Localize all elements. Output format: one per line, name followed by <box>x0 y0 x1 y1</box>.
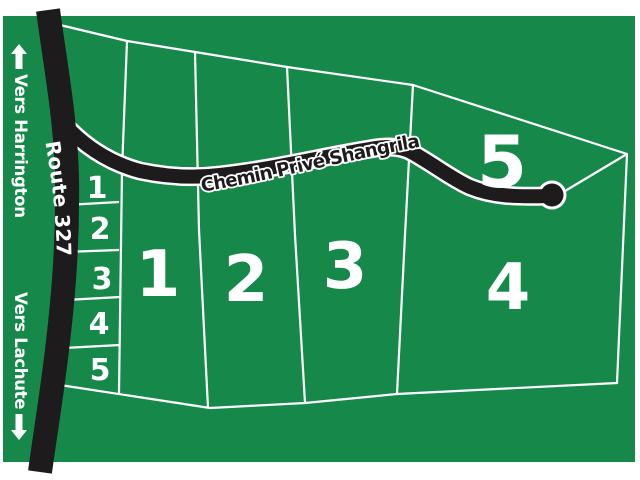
small-lot-2-number: 2 <box>90 212 111 247</box>
cul-de-sac-bulb <box>541 184 564 207</box>
large-lot-3-number: 3 <box>323 230 368 304</box>
large-lot-4-number: 4 <box>486 251 531 325</box>
direction-north-label: Vers Harrington <box>11 74 30 218</box>
large-lot-5-number: 5 <box>477 120 527 204</box>
lot-map-page: 1 2 3 4 5 1 2 3 4 5 Vers Harrington Vers… <box>0 0 640 480</box>
small-lot-3-number: 3 <box>92 262 113 297</box>
large-lot-1-number: 1 <box>136 238 181 312</box>
large-lot-2-number: 2 <box>224 243 269 317</box>
small-lot-1-number: 1 <box>87 171 108 206</box>
direction-south-label: Vers Lachute <box>11 292 30 409</box>
small-lot-5-number: 5 <box>90 353 111 388</box>
small-lot-4-number: 4 <box>89 307 110 342</box>
map-canvas: 1 2 3 4 5 1 2 3 4 5 Vers Harrington Vers… <box>0 0 640 480</box>
